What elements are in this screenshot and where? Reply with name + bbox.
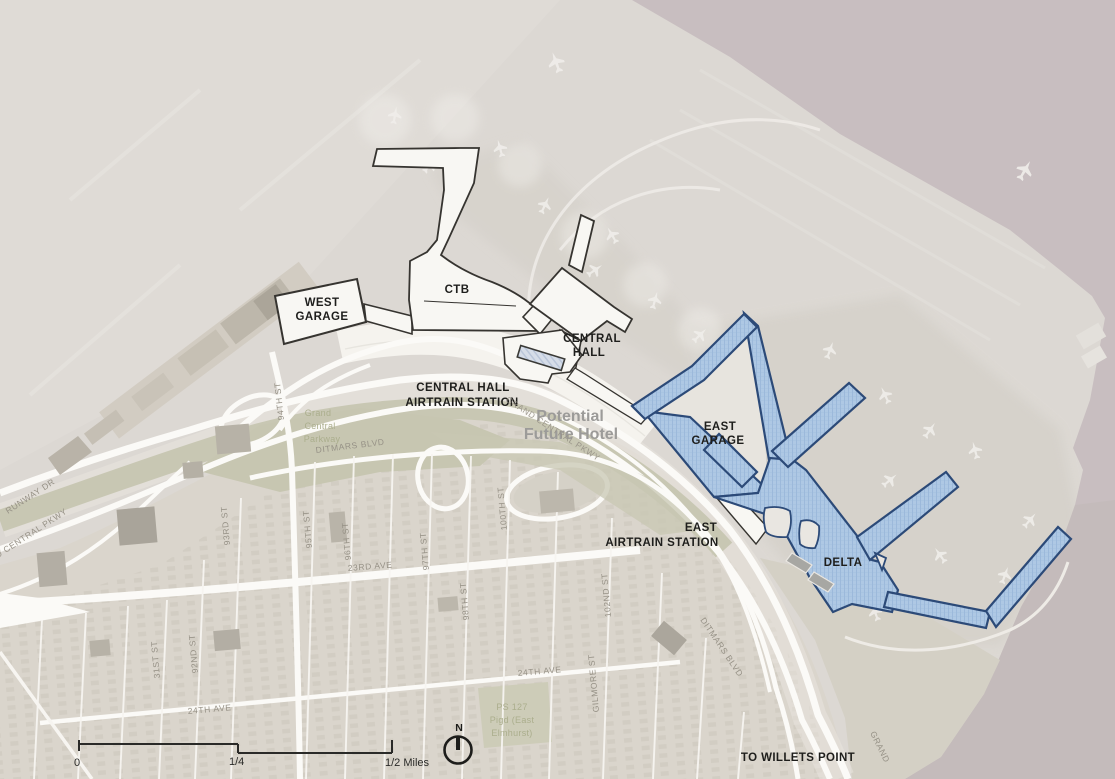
svg-text:Central: Central — [304, 421, 335, 431]
svg-text:EAST: EAST — [704, 421, 736, 433]
svg-text:CENTRAL: CENTRAL — [563, 333, 621, 345]
svg-text:Elmhurst): Elmhurst) — [491, 728, 532, 738]
svg-text:1/4: 1/4 — [229, 756, 244, 768]
svg-text:EAST: EAST — [685, 522, 717, 534]
svg-text:0: 0 — [74, 757, 80, 769]
svg-text:GARAGE: GARAGE — [692, 435, 745, 447]
svg-text:Parkway: Parkway — [304, 434, 341, 444]
svg-text:Grand: Grand — [305, 408, 332, 418]
svg-text:AIRTRAIN STATION: AIRTRAIN STATION — [605, 537, 718, 549]
svg-text:CENTRAL HALL: CENTRAL HALL — [416, 382, 509, 394]
svg-text:GARAGE: GARAGE — [296, 311, 349, 323]
svg-text:CTB: CTB — [445, 284, 470, 296]
svg-text:TO WILLETS POINT: TO WILLETS POINT — [741, 752, 855, 764]
svg-text:N: N — [455, 722, 463, 734]
svg-text:1/2 Miles: 1/2 Miles — [385, 757, 430, 769]
svg-text:PS 127: PS 127 — [496, 702, 527, 712]
svg-text:WEST: WEST — [305, 297, 340, 309]
svg-text:Pigd (East: Pigd (East — [490, 715, 535, 725]
svg-text:AIRTRAIN STATION: AIRTRAIN STATION — [405, 397, 518, 409]
svg-text:HALL: HALL — [573, 347, 605, 359]
svg-text:DELTA: DELTA — [824, 557, 863, 569]
